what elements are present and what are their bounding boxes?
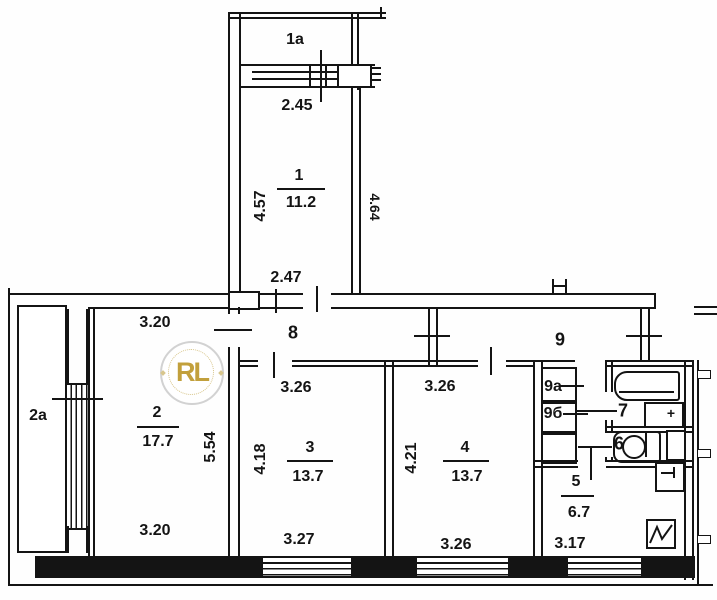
kitchen-underline xyxy=(561,495,594,497)
room-2-area: 17.7 xyxy=(142,433,173,451)
wall xyxy=(228,307,230,314)
watermark-rl-text: RL xyxy=(176,357,208,388)
wall xyxy=(611,360,613,392)
dim-room1-left: 4.57 xyxy=(252,190,270,221)
door-tick-kitchen xyxy=(590,447,592,480)
room-3-area: 13.7 xyxy=(292,468,323,486)
window-room4 xyxy=(417,558,508,576)
bathtub-rim xyxy=(619,391,674,393)
dim-room2-side: 5.54 xyxy=(202,431,220,462)
wall xyxy=(331,293,656,295)
wall xyxy=(692,360,694,580)
wall xyxy=(228,17,386,19)
wall xyxy=(392,360,394,556)
wc-cabinet xyxy=(666,430,686,461)
room-1-area: 11.2 xyxy=(286,194,316,212)
dim-room2-bottom: 3.20 xyxy=(139,522,170,540)
wall xyxy=(331,307,654,309)
stove-zigzag-icon xyxy=(648,521,674,547)
window-kitchen xyxy=(568,558,641,576)
wall xyxy=(535,466,578,468)
leader-9b xyxy=(563,413,588,415)
boundary-notch xyxy=(697,535,711,544)
hall-9-label: 9 xyxy=(555,330,565,351)
wall xyxy=(430,365,478,367)
room-4-number: 4 xyxy=(461,439,470,457)
balcony-door-tick xyxy=(325,64,327,88)
boundary xyxy=(8,584,713,586)
bath-sink xyxy=(644,402,684,428)
wall xyxy=(88,307,90,556)
bathroom-7-label: 7 xyxy=(618,401,628,422)
wc-6-label: 6 xyxy=(614,434,624,455)
room-1-underline xyxy=(277,188,325,190)
kitchen-number: 5 xyxy=(572,473,581,491)
dim-room3-side: 4.18 xyxy=(252,443,270,474)
wall xyxy=(238,365,258,367)
wall-pier xyxy=(228,291,260,310)
wall xyxy=(67,309,69,383)
door-tick-room1 xyxy=(316,286,318,312)
dim-balcony-width: 2.45 xyxy=(281,97,312,115)
balcony-door-tick xyxy=(320,50,322,102)
door-tick-entry xyxy=(626,335,662,337)
boundary-notch xyxy=(697,370,711,379)
wall xyxy=(228,12,230,295)
wall xyxy=(654,293,656,309)
tick xyxy=(52,398,103,400)
door-tick-room2 xyxy=(214,329,252,331)
dim-room4-top: 3.26 xyxy=(424,378,455,396)
boundary xyxy=(8,288,10,586)
watermark-dot xyxy=(160,370,166,376)
wall xyxy=(93,307,95,556)
dim-room1-bottom: 2.47 xyxy=(270,269,301,287)
wall xyxy=(384,360,386,556)
floor-plan: + 1a 2.45 1 11.2 4.57 4.64 2.47 8 9 2a 3… xyxy=(0,0,717,600)
balcony-door-tick xyxy=(309,64,311,88)
vent-mark xyxy=(552,285,567,287)
wall xyxy=(506,360,535,362)
wall xyxy=(228,347,230,556)
closet-9a-label: 9a xyxy=(544,378,562,396)
wall xyxy=(239,12,241,295)
wall xyxy=(238,347,240,556)
neighbor-wall xyxy=(694,306,717,308)
room-3-number: 3 xyxy=(306,439,315,457)
sink-plus: + xyxy=(667,405,675,421)
room-3-underline xyxy=(287,460,333,462)
corner-tick xyxy=(380,7,382,18)
watermark-dot xyxy=(218,370,224,376)
door-tick-hall xyxy=(414,335,450,337)
room-1-number: 1 xyxy=(295,167,304,185)
balcony-1a-label: 1a xyxy=(286,31,304,49)
wall xyxy=(67,526,69,553)
wall xyxy=(506,365,535,367)
boundary-notch xyxy=(697,449,711,458)
leader-6 xyxy=(578,446,612,448)
dim-room3-top: 3.26 xyxy=(280,379,311,397)
kitchen-tap xyxy=(673,467,675,478)
wall xyxy=(88,307,303,309)
bathtub xyxy=(614,371,680,401)
dim-room3-bottom: 3.27 xyxy=(283,531,314,549)
tick xyxy=(275,289,277,313)
stove xyxy=(646,519,676,549)
door-tick-room3 xyxy=(273,352,275,378)
room-2-underline xyxy=(137,426,179,428)
wall xyxy=(238,360,258,362)
wall xyxy=(607,360,692,362)
dim-room4-bottom: 3.26 xyxy=(440,536,471,554)
wall xyxy=(359,88,361,295)
dim-kitchen-bottom: 3.17 xyxy=(554,535,585,553)
door-tick-room4 xyxy=(490,347,492,375)
room-2-number: 2 xyxy=(153,404,162,422)
closet-9b-label: 9б xyxy=(544,405,563,423)
watermark-logo: RL xyxy=(160,341,224,405)
wall xyxy=(607,365,692,367)
hall-8-label: 8 xyxy=(288,323,298,344)
balcony-2a-label: 2a xyxy=(29,407,47,425)
hatch-tick xyxy=(372,67,381,69)
leader-7 xyxy=(575,410,617,412)
wall xyxy=(535,460,578,462)
dim-room1-right: 4.64 xyxy=(367,193,383,220)
boundary xyxy=(697,360,699,585)
wall xyxy=(605,360,607,392)
wall xyxy=(351,88,353,295)
wall xyxy=(228,12,386,14)
toilet-bowl xyxy=(622,435,646,459)
window-room3 xyxy=(263,558,351,576)
wall xyxy=(238,307,240,314)
wall xyxy=(292,365,430,367)
hatch-tick xyxy=(372,79,381,81)
room-4-underline xyxy=(443,460,489,462)
wall xyxy=(430,360,478,362)
neighbor-wall xyxy=(694,313,717,315)
wall xyxy=(535,360,575,362)
hatch-tick xyxy=(372,73,381,75)
leader-9a xyxy=(560,385,584,387)
wall xyxy=(292,360,430,362)
dim-room4-side: 4.21 xyxy=(403,442,421,473)
window-2a xyxy=(67,383,88,530)
wall xyxy=(428,309,430,367)
balcony-2a xyxy=(17,305,67,553)
dim-room2-top: 3.20 xyxy=(139,314,170,332)
room-4-area: 13.7 xyxy=(451,468,482,486)
kitchen-area: 6.7 xyxy=(568,504,590,522)
kitchen-sink xyxy=(655,462,685,492)
wall-pier xyxy=(337,64,372,88)
wall xyxy=(436,309,438,367)
wall xyxy=(533,360,535,556)
